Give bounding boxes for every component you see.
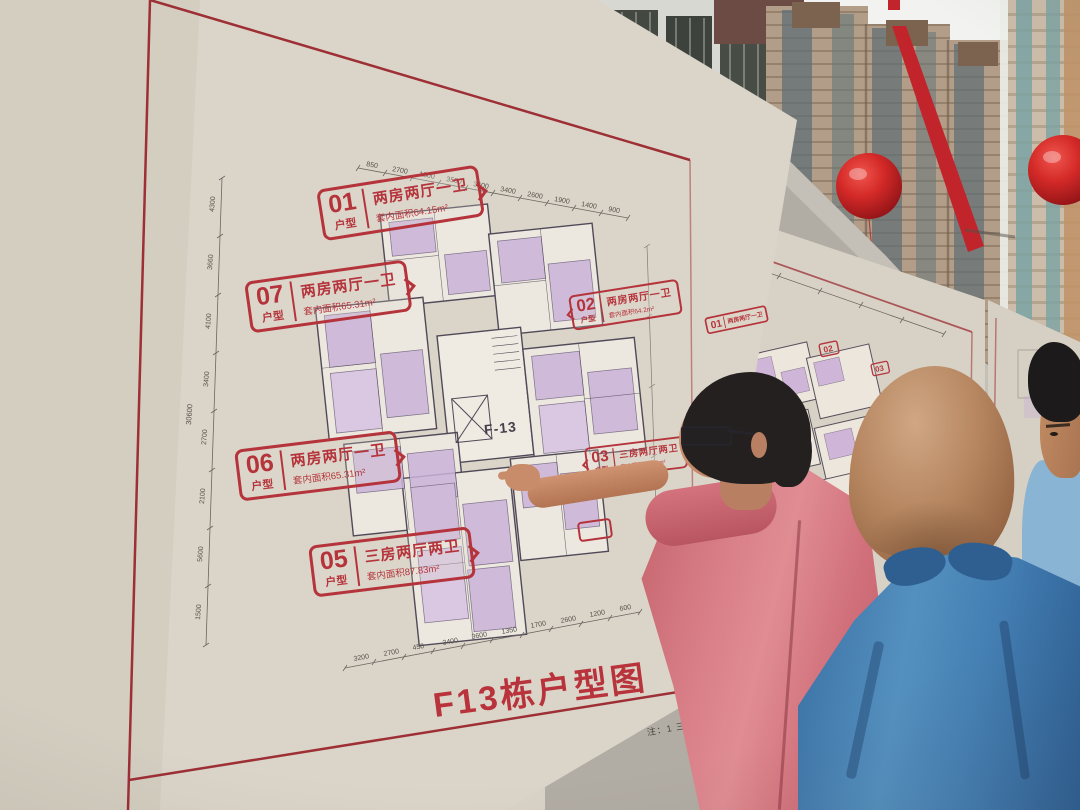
photo-scene: 850 2700 1300 3500 3600 3400 2600 1900 1… [0, 0, 1080, 810]
building-code-label: F-13 [483, 418, 517, 437]
svg-text:30600: 30600 [184, 404, 194, 425]
glasses [681, 426, 732, 446]
svg-text:5600: 5600 [197, 546, 205, 562]
man-right-hair [1028, 342, 1080, 422]
svg-text:4300: 4300 [209, 196, 217, 212]
man-pink-ear [751, 432, 767, 458]
svg-text:2100: 2100 [199, 488, 207, 504]
man-right-eye [1050, 432, 1058, 436]
svg-text:3660: 3660 [207, 254, 215, 270]
svg-text:3400: 3400 [203, 371, 211, 387]
svg-text:4100: 4100 [205, 313, 213, 329]
svg-text:1500: 1500 [195, 604, 203, 620]
unit-01-number: 01 户型 [327, 189, 370, 234]
svg-text:2700: 2700 [201, 429, 209, 445]
